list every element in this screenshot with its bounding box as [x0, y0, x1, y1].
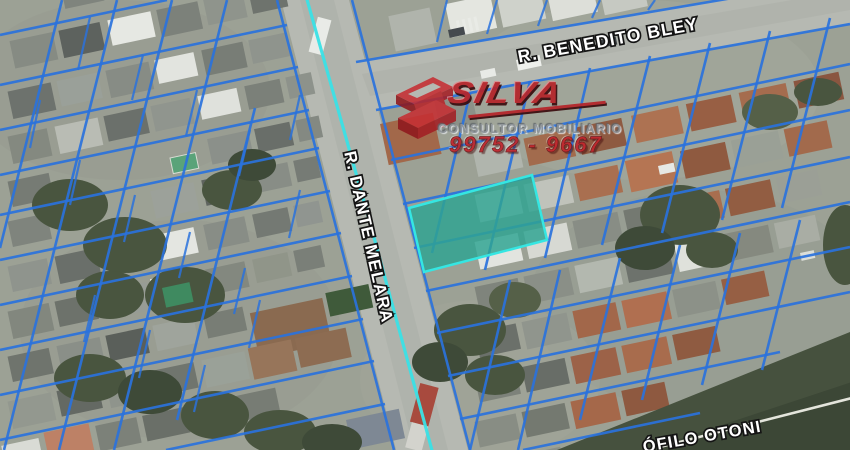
- map-viewport[interactable]: R. BENEDITO BLEY R. DANTE MELARA ÓFILO O…: [0, 0, 850, 450]
- aerial-map: R. BENEDITO BLEY R. DANTE MELARA ÓFILO O…: [0, 0, 850, 450]
